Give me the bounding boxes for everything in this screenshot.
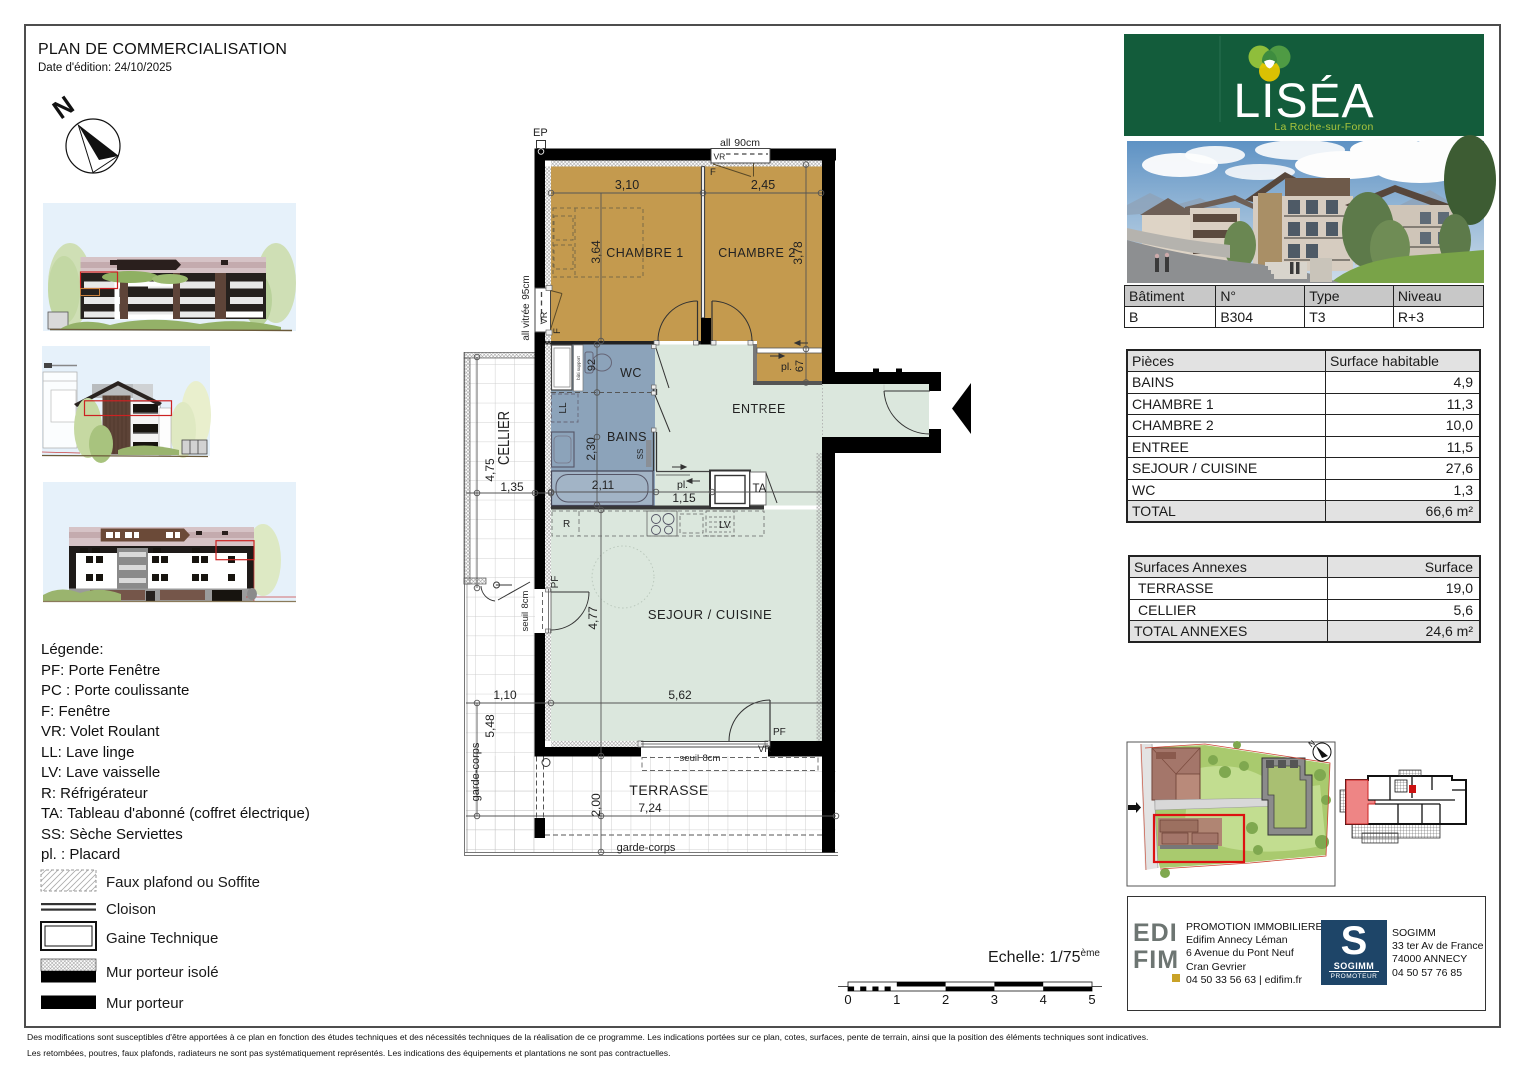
svg-text:TA: TA xyxy=(753,483,767,495)
svg-text:F: F xyxy=(710,167,716,178)
svg-text:3: 3 xyxy=(991,992,998,1007)
svg-text:PF: PF xyxy=(773,727,786,738)
svg-text:1,10: 1,10 xyxy=(493,688,517,702)
svg-text:La Roche-sur-Foron: La Roche-sur-Foron xyxy=(1274,121,1373,133)
svg-text:seuil 8cm: seuil 8cm xyxy=(520,590,531,631)
svg-text:SEJOUR / CUISINE: SEJOUR / CUISINE xyxy=(648,607,772,622)
svg-text:EP: EP xyxy=(533,127,548,139)
svg-text:5,62: 5,62 xyxy=(668,688,692,702)
svg-text:N: N xyxy=(47,90,80,125)
svg-text:1: 1 xyxy=(893,992,900,1007)
svg-text:TERRASSE: TERRASSE xyxy=(629,782,708,798)
svg-text:R: R xyxy=(563,519,570,530)
svg-text:bâti support: bâti support xyxy=(576,355,581,379)
svg-text:1,35: 1,35 xyxy=(500,480,524,494)
svg-text:CELLIER: CELLIER xyxy=(496,411,513,465)
svg-text:ENTREE: ENTREE xyxy=(732,402,786,416)
svg-text:5: 5 xyxy=(1088,992,1095,1007)
svg-text:3,64: 3,64 xyxy=(589,240,603,264)
svg-text:CHAMBRE 1: CHAMBRE 1 xyxy=(606,246,683,260)
svg-text:2,00: 2,00 xyxy=(589,793,603,817)
svg-text:2: 2 xyxy=(942,992,949,1007)
svg-text:1,15: 1,15 xyxy=(672,491,696,505)
svg-text:2,11: 2,11 xyxy=(592,478,615,492)
svg-text:0: 0 xyxy=(844,992,851,1007)
svg-text:LL: LL xyxy=(558,402,569,414)
svg-text:VR: VR xyxy=(758,744,771,755)
svg-text:WC: WC xyxy=(620,366,642,380)
svg-text:F: F xyxy=(552,328,563,334)
svg-text:LV: LV xyxy=(719,520,731,531)
svg-text:VR: VR xyxy=(714,152,726,162)
svg-text:all vitrée 95cm: all vitrée 95cm xyxy=(521,275,532,340)
svg-text:garde-corps: garde-corps xyxy=(617,842,676,854)
svg-text:2,30: 2,30 xyxy=(584,437,598,461)
svg-text:5,48: 5,48 xyxy=(483,714,497,738)
svg-text:BAINS: BAINS xyxy=(607,430,647,444)
svg-text:CHAMBRE 2: CHAMBRE 2 xyxy=(718,246,795,260)
svg-text:VR: VR xyxy=(539,311,549,324)
svg-text:all 90cm: all 90cm xyxy=(720,137,760,149)
svg-text:4: 4 xyxy=(1040,992,1047,1007)
svg-text:4,75: 4,75 xyxy=(483,458,497,482)
svg-text:7,24: 7,24 xyxy=(638,801,662,815)
svg-text:4,77: 4,77 xyxy=(586,606,600,630)
svg-text:3,78: 3,78 xyxy=(791,241,805,265)
svg-text:pl.: pl. xyxy=(781,361,792,373)
svg-text:3,10: 3,10 xyxy=(615,178,639,192)
svg-text:PF: PF xyxy=(550,576,561,589)
svg-text:92: 92 xyxy=(586,359,598,371)
svg-text:garde-corps: garde-corps xyxy=(470,742,482,801)
svg-text:seuil 8cm: seuil 8cm xyxy=(680,753,721,764)
svg-text:67: 67 xyxy=(794,360,806,372)
svg-text:SS: SS xyxy=(636,449,645,460)
svg-text:2,45: 2,45 xyxy=(751,178,775,192)
